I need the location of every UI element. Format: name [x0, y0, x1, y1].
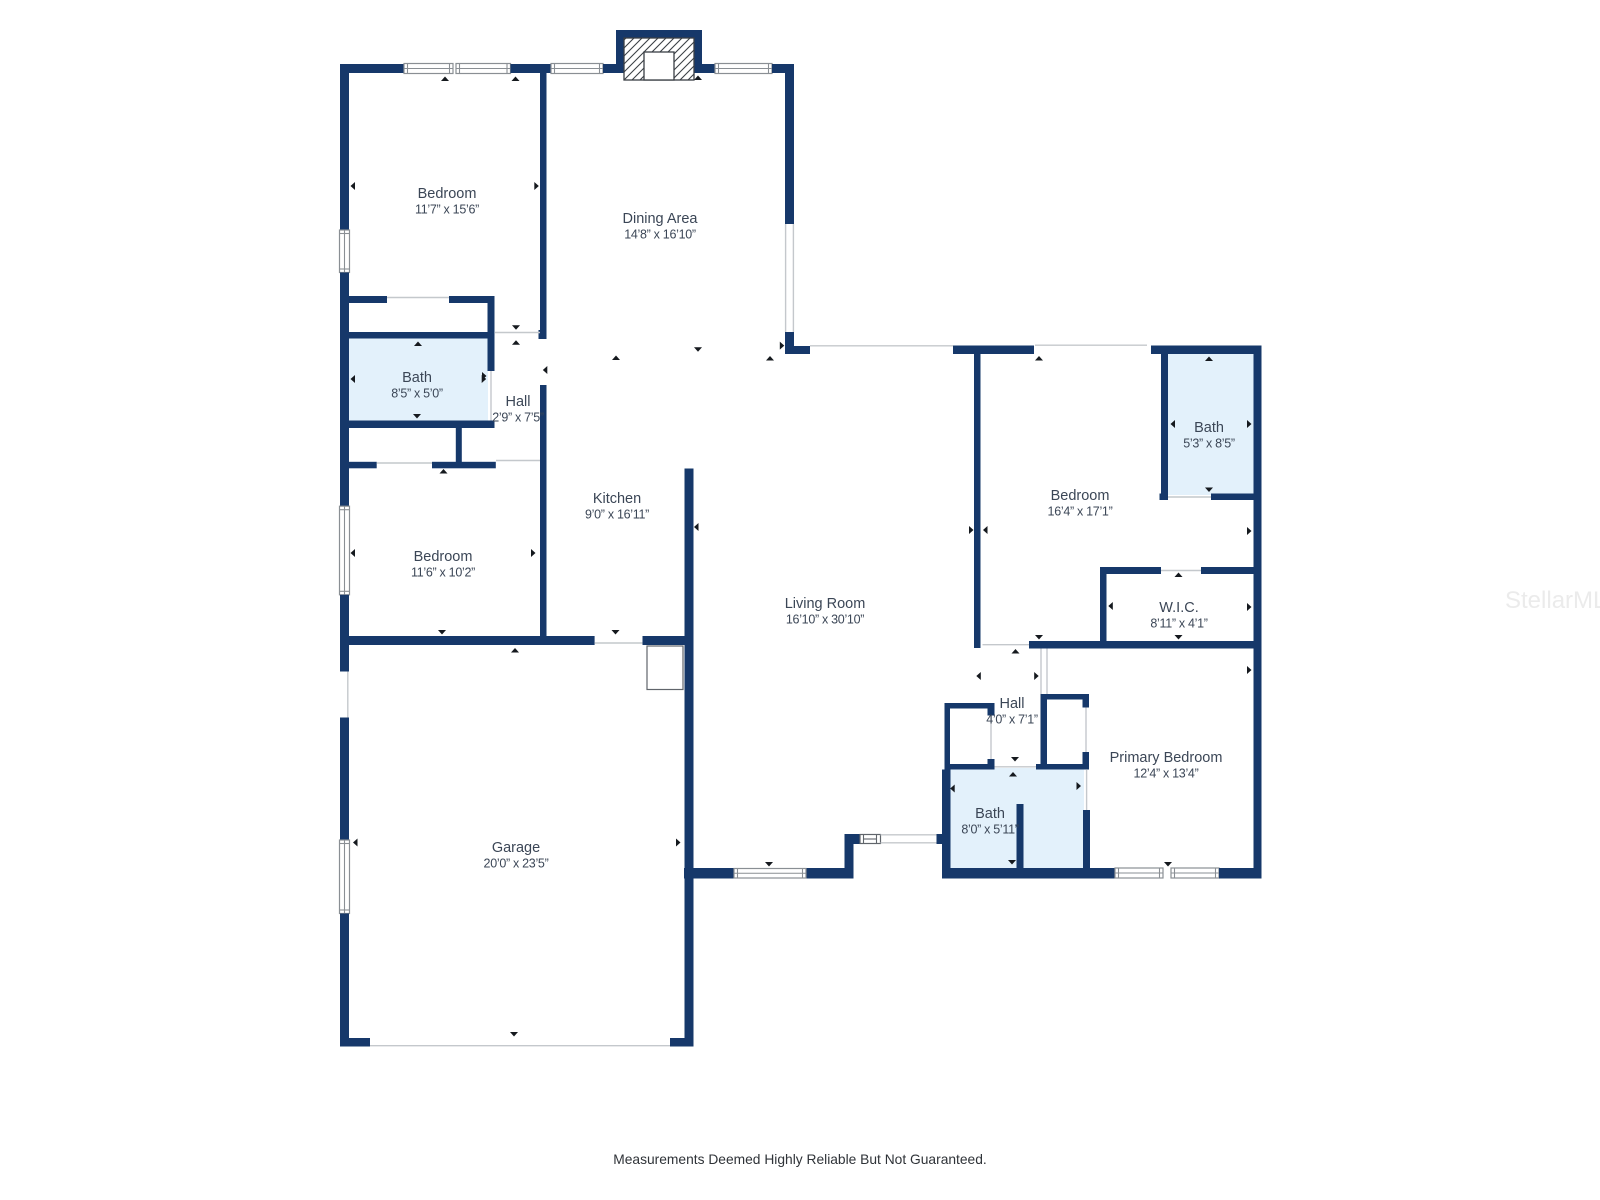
svg-text:11’7” x 15’6”: 11’7” x 15’6” — [415, 203, 479, 217]
svg-text:2’9” x 7’5”: 2’9” x 7’5” — [492, 411, 544, 425]
svg-text:Kitchen: Kitchen — [593, 491, 641, 507]
svg-text:8’5” x 5’0”: 8’5” x 5’0” — [391, 387, 443, 401]
svg-text:16’4” x 17’1”: 16’4” x 17’1” — [1048, 505, 1113, 519]
svg-text:Hall: Hall — [506, 394, 531, 410]
svg-text:Hall: Hall — [1000, 696, 1025, 712]
svg-text:Bedroom: Bedroom — [414, 549, 473, 565]
svg-text:Bath: Bath — [402, 370, 432, 386]
svg-text:14’8” x 16’10”: 14’8” x 16’10” — [624, 228, 696, 242]
svg-text:Garage: Garage — [492, 840, 540, 856]
svg-text:StellarMLS: StellarMLS — [1505, 587, 1600, 614]
svg-text:12’4” x 13’4”: 12’4” x 13’4” — [1134, 767, 1199, 781]
svg-text:Bedroom: Bedroom — [418, 186, 477, 202]
svg-text:11’6” x 10’2”: 11’6” x 10’2” — [411, 566, 475, 580]
svg-text:8’0” x 5’11”: 8’0” x 5’11” — [961, 823, 1018, 837]
svg-text:Bath: Bath — [975, 806, 1005, 822]
svg-text:4’0” x 7’1”: 4’0” x 7’1” — [986, 713, 1038, 727]
svg-text:W.I.C.: W.I.C. — [1159, 600, 1198, 616]
svg-text:Dining Area: Dining Area — [623, 211, 699, 227]
svg-text:Measurements Deemed Highly Rel: Measurements Deemed Highly Reliable But … — [613, 1152, 986, 1167]
svg-text:16’10” x 30’10”: 16’10” x 30’10” — [786, 613, 864, 627]
svg-text:Primary Bedroom: Primary Bedroom — [1110, 750, 1223, 766]
svg-text:9’0” x 16’11”: 9’0” x 16’11” — [585, 508, 649, 522]
svg-text:Bedroom: Bedroom — [1051, 488, 1110, 504]
svg-text:Bath: Bath — [1194, 420, 1224, 436]
svg-text:8’11” x 4’1”: 8’11” x 4’1” — [1150, 617, 1207, 631]
svg-text:5’3” x 8’5”: 5’3” x 8’5” — [1183, 437, 1235, 451]
svg-text:Living Room: Living Room — [785, 596, 866, 612]
svg-text:20’0” x 23’5”: 20’0” x 23’5” — [484, 857, 549, 871]
